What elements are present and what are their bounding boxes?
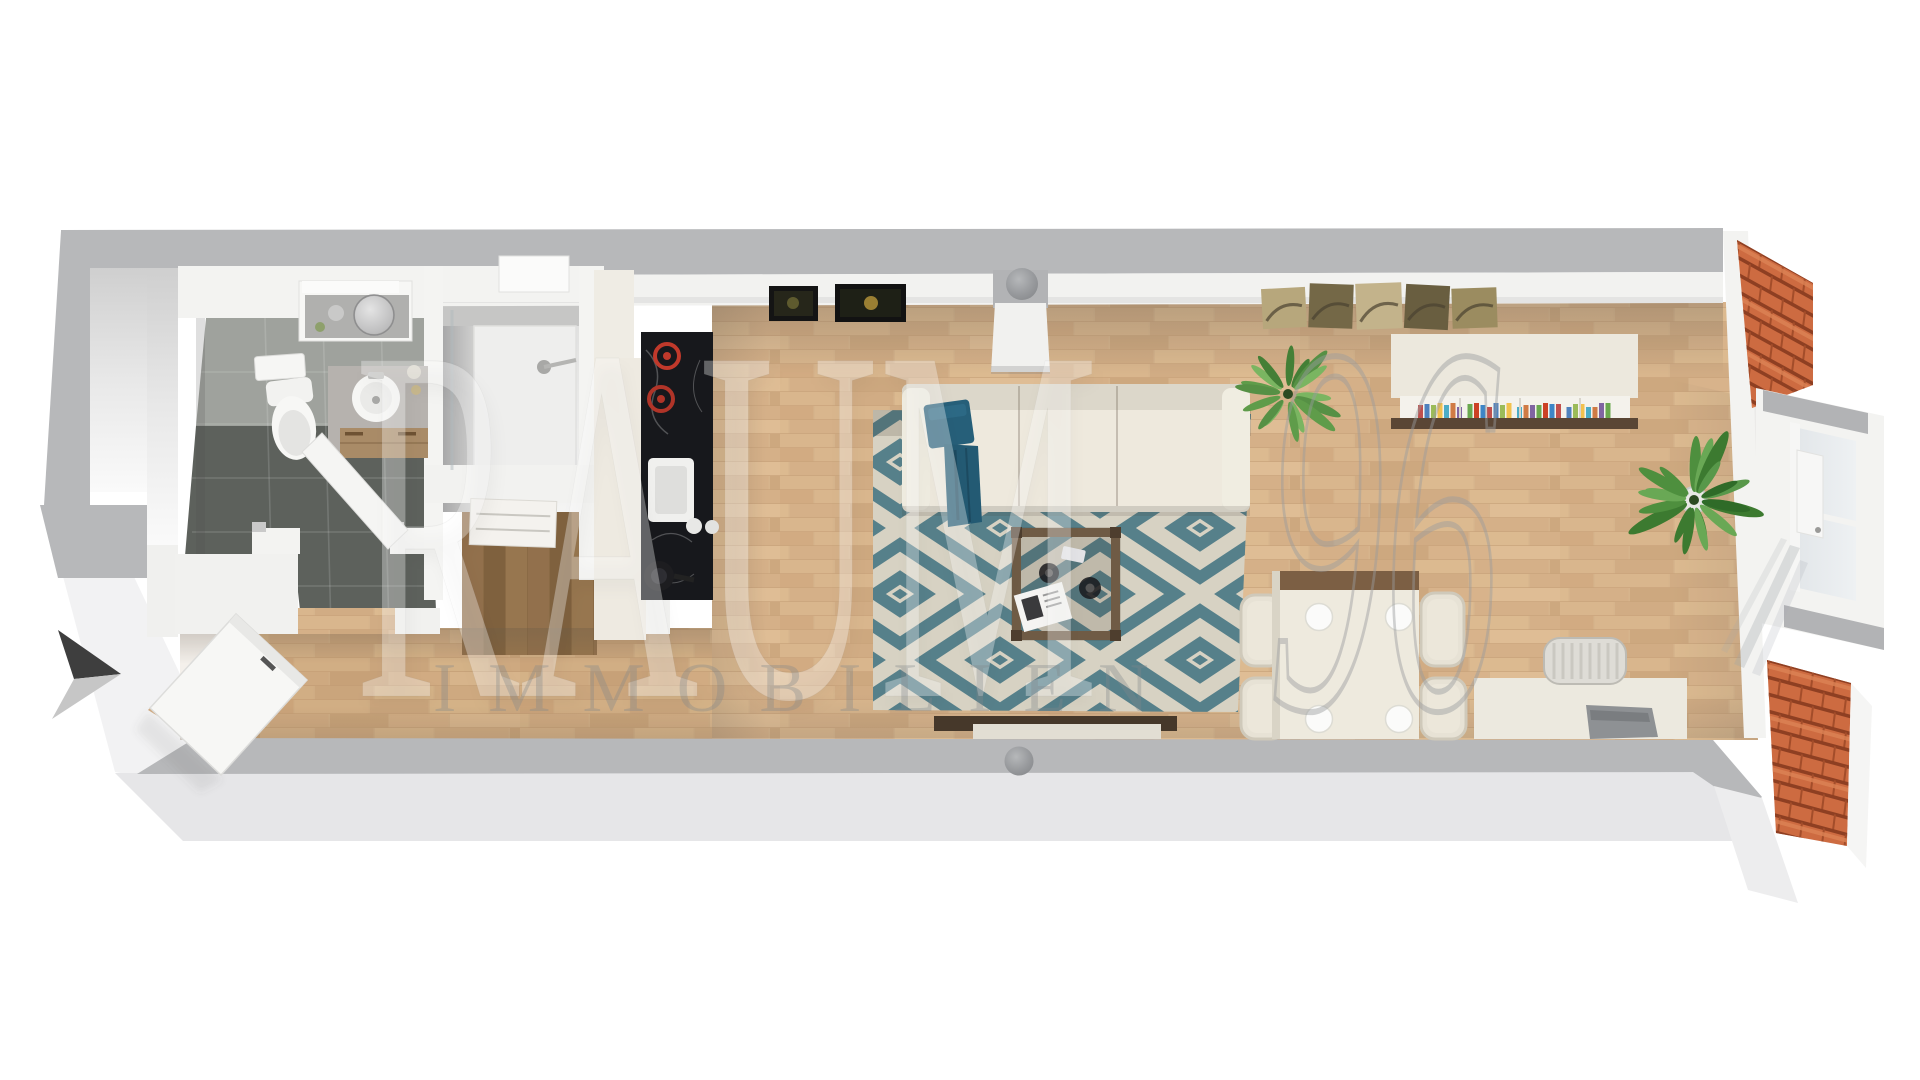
svg-text:96: 96 [1268, 235, 1500, 822]
svg-text:IMMOBILIEN: IMMOBILIEN [433, 650, 1181, 727]
